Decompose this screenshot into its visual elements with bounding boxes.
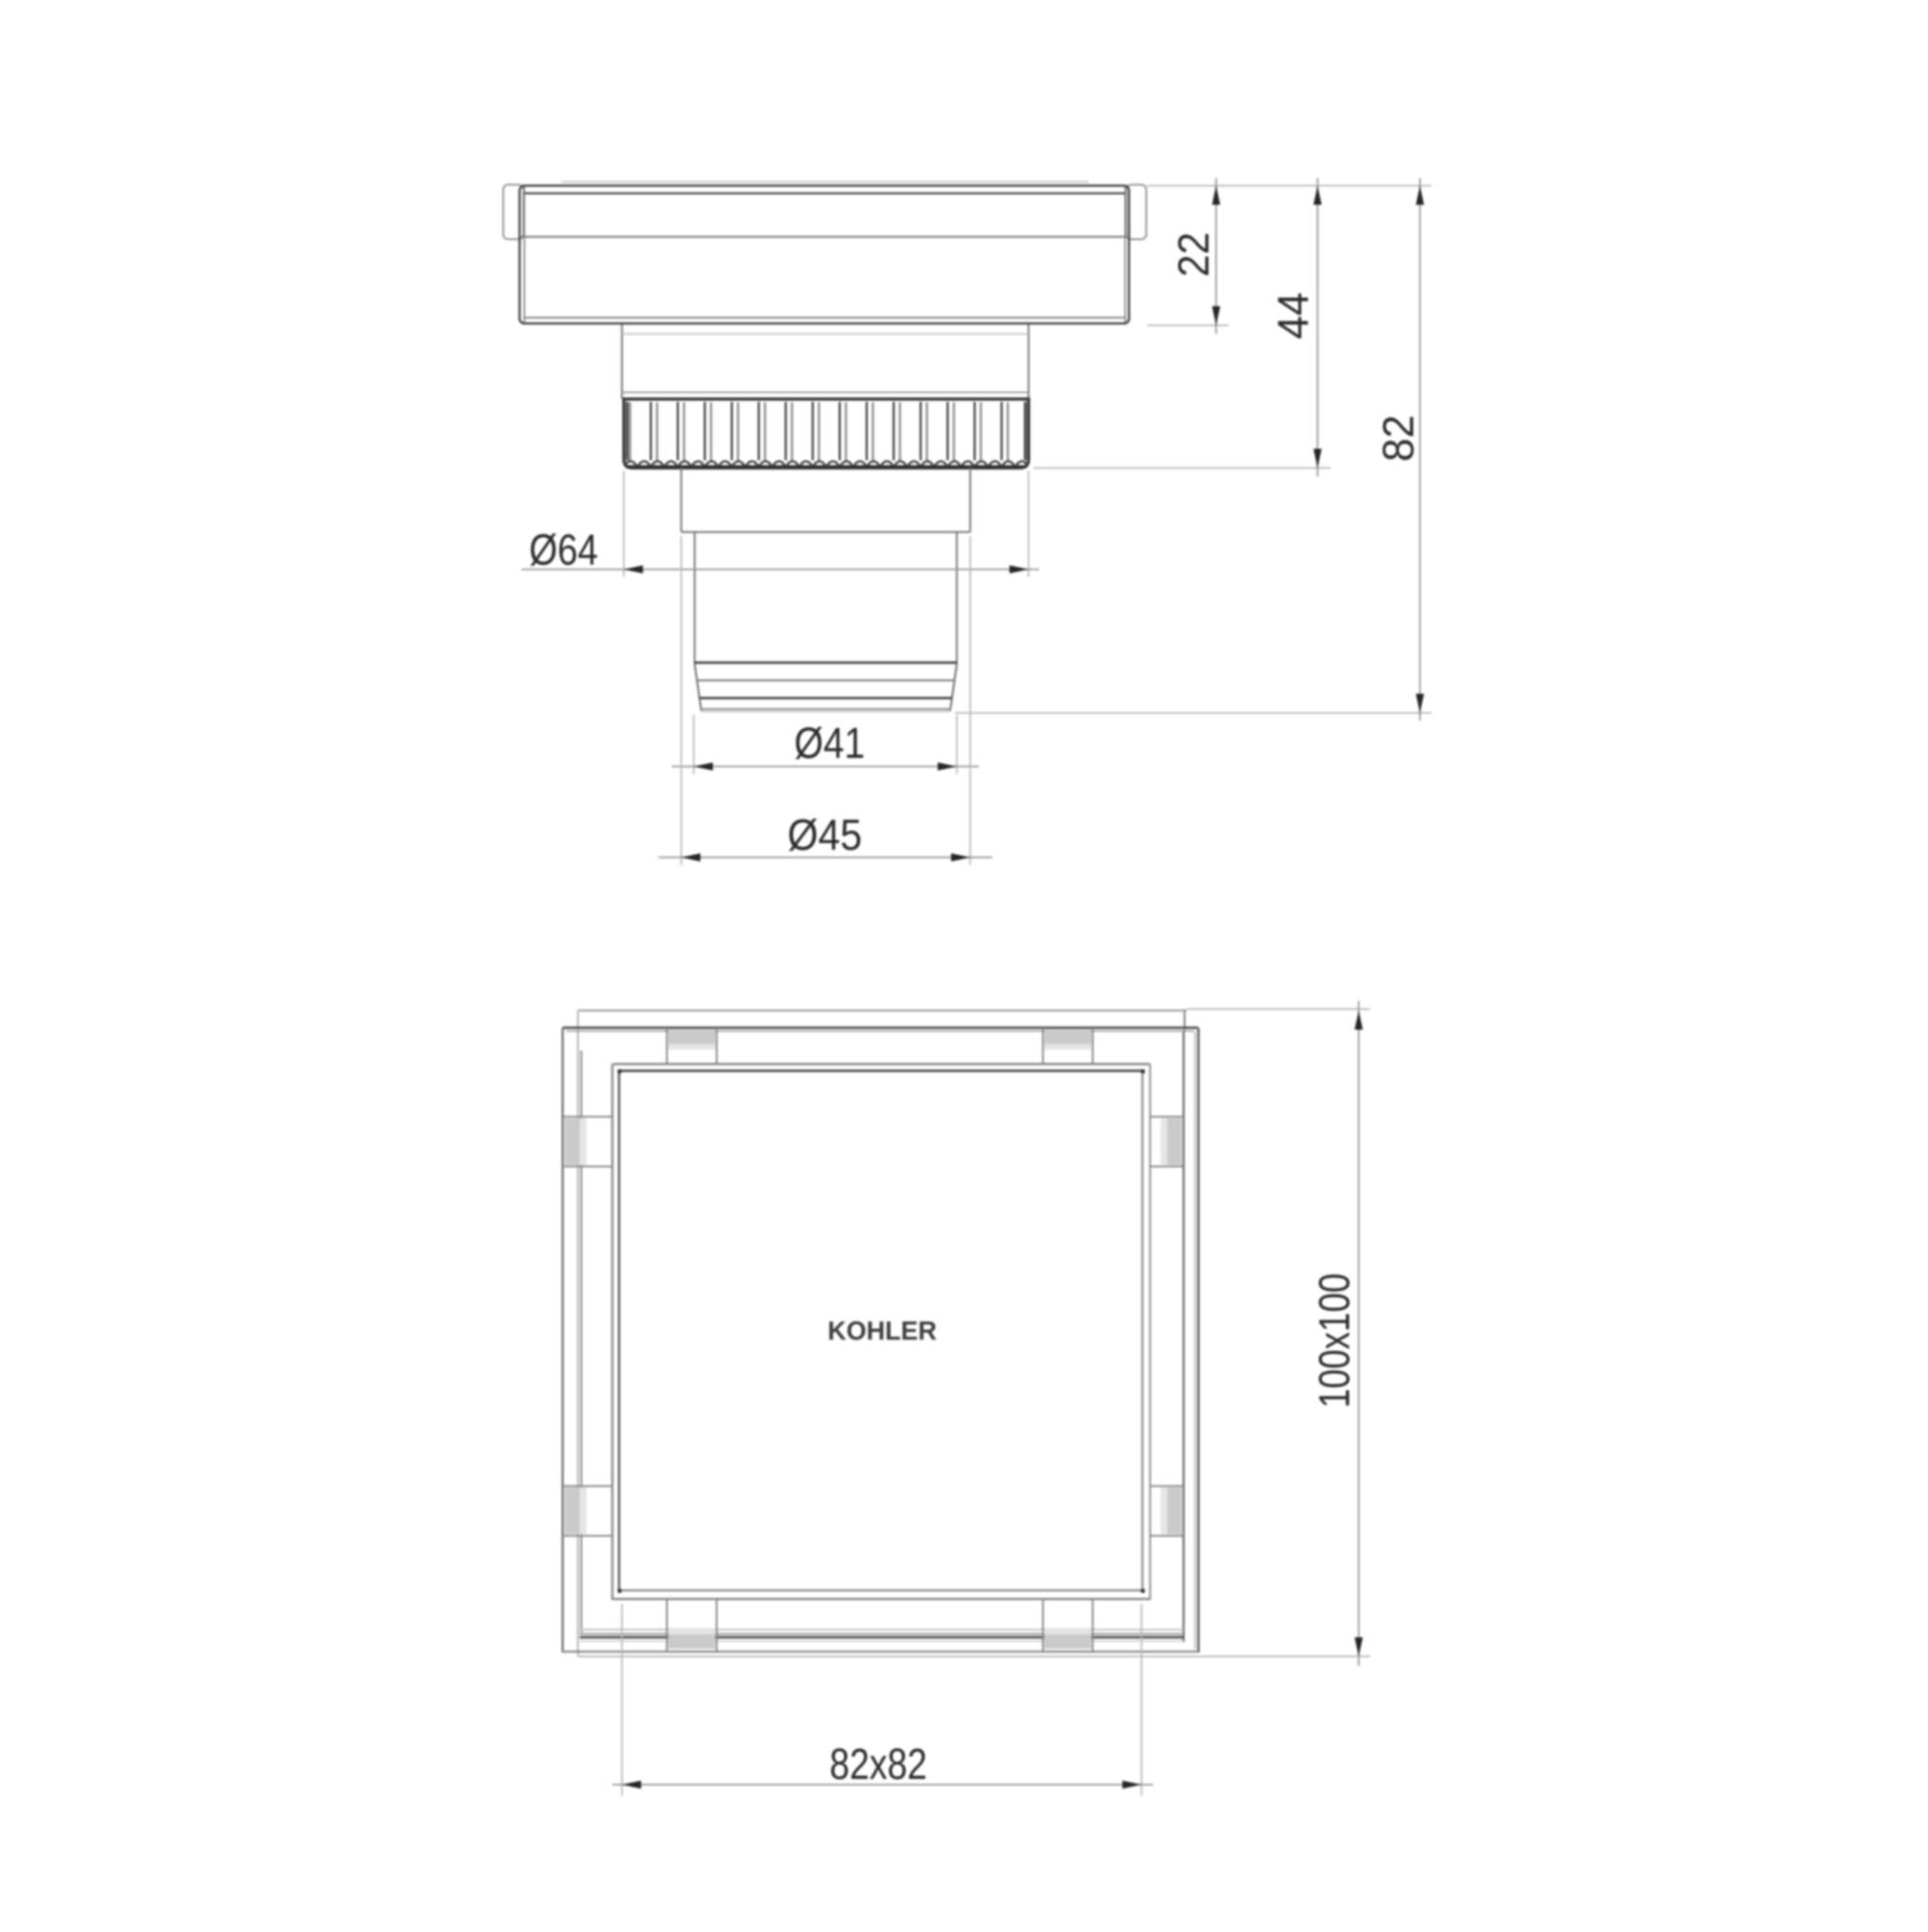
svg-text:100x100: 100x100 xyxy=(1310,1274,1359,1409)
svg-text:Ø45: Ø45 xyxy=(787,811,862,859)
svg-text:44: 44 xyxy=(1269,293,1318,340)
svg-text:82x82: 82x82 xyxy=(830,1740,927,1788)
svg-text:22: 22 xyxy=(1169,233,1218,278)
svg-text:Ø41: Ø41 xyxy=(794,719,865,767)
svg-text:Ø64: Ø64 xyxy=(529,525,598,574)
svg-text:82: 82 xyxy=(1374,415,1423,462)
svg-text:KOHLER: KOHLER xyxy=(828,1316,937,1345)
